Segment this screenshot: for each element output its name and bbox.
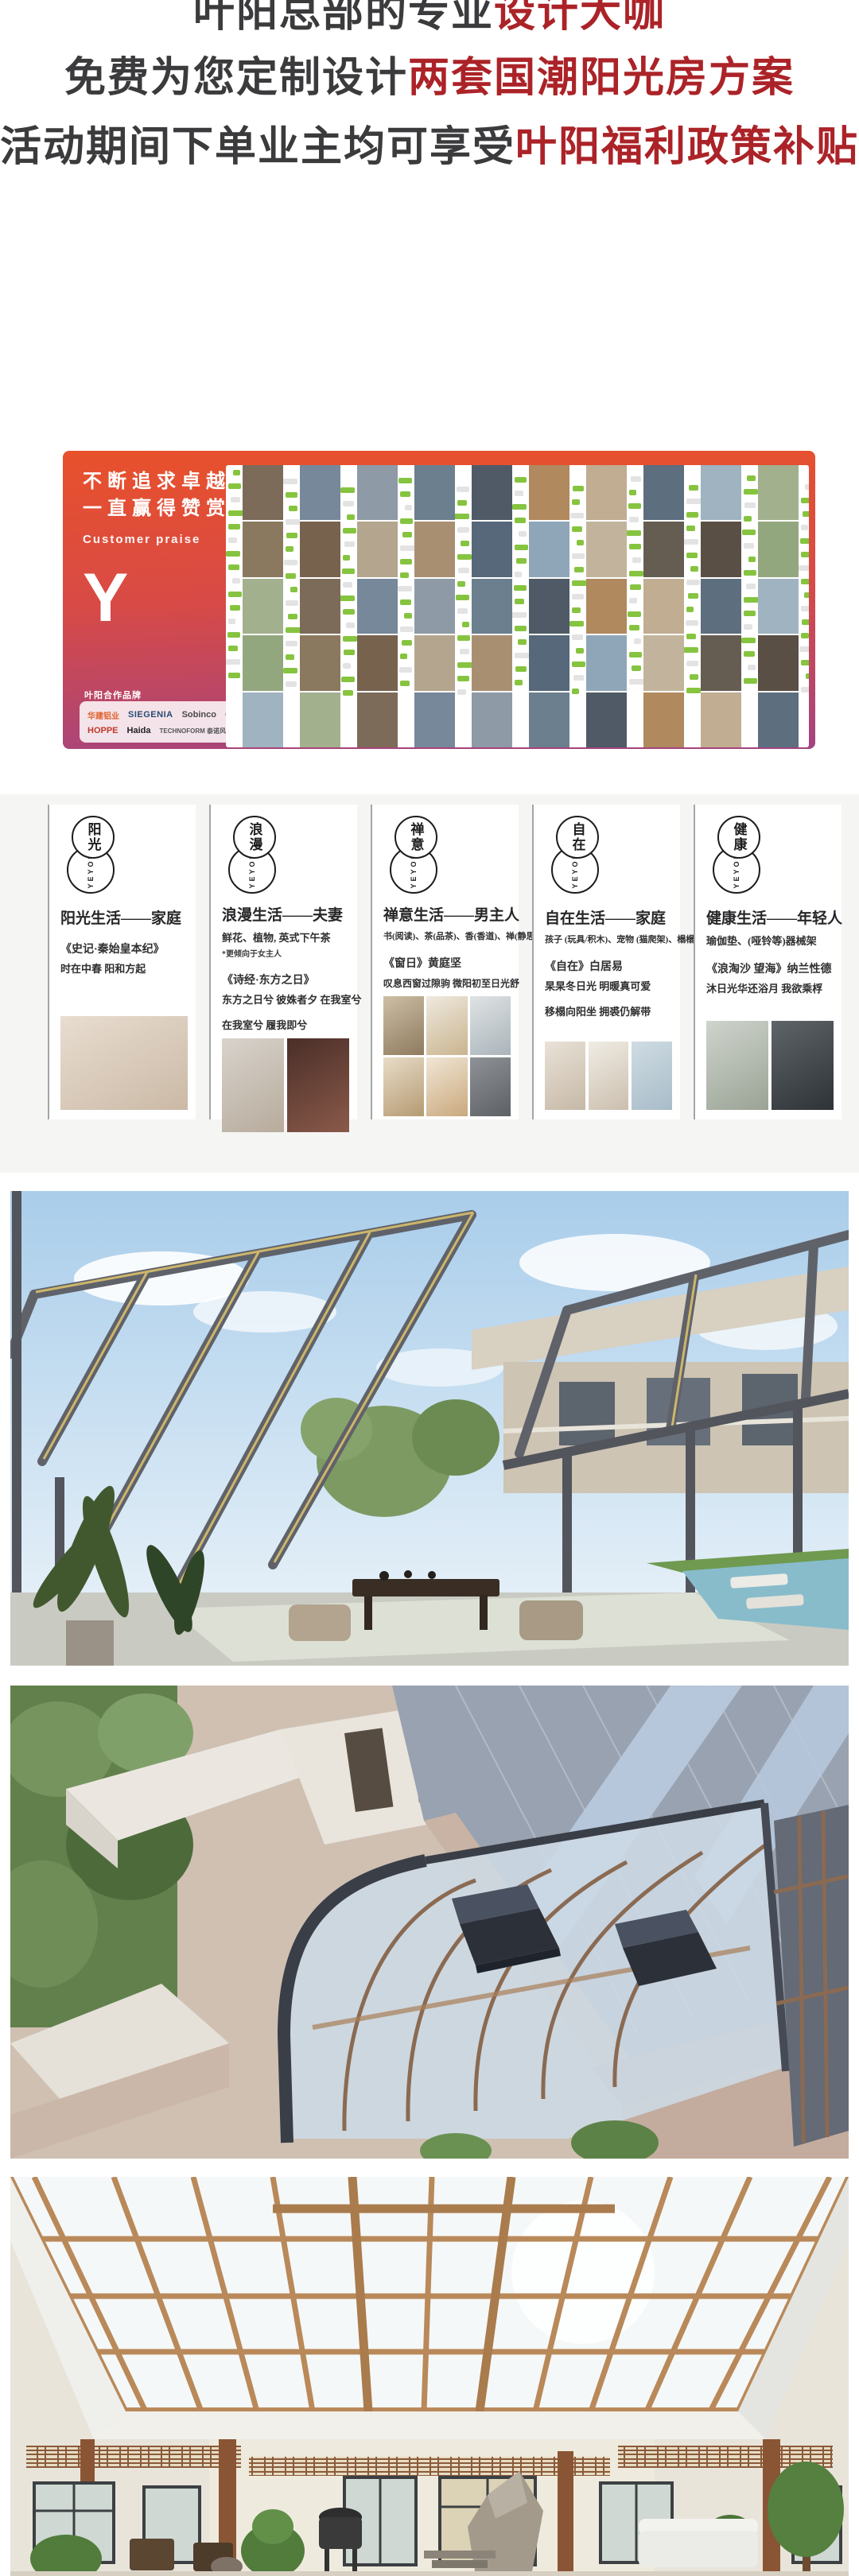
trees-left [10, 1686, 193, 2027]
card-photo-strip [60, 1016, 188, 1110]
poem-source: 《自在》白居易 [545, 958, 672, 974]
poem-source: 《浪淘沙 望海》纳兰性德 [706, 960, 834, 976]
lifestyle-card-carefree-family: 自在 YEYON 自在生活——家庭 孩子 (玩具/积木)、宠物 (猫爬架)、榻榻… [532, 805, 680, 1119]
lifestyle-card-healthy-youth: 健康 YEYON 健康生活——年轻人 瑜伽垫、(哑铃等)器械架 《浪淘沙 望海》… [694, 805, 842, 1119]
headline-line-3: 活动期间下单业主均可享受叶阳福利政策补贴 [0, 123, 859, 171]
brand-logo-technoform: TECHNOFORM 泰诺风 [159, 727, 226, 735]
headline-accent: 设计大咖 [494, 0, 666, 36]
poem-line: 在我室兮 履我即兮 [222, 1013, 349, 1038]
headline-line-1: 叶阳总部的专业设计大咖 [0, 0, 859, 37]
card-title: 健康生活——年轻人 [706, 906, 834, 928]
seal-circle-top: 自在 [556, 816, 599, 859]
lifestyle-card-zen-host: 禅意 YEYON 禅意生活——男主人 书(阅读)、茶(品茶)、香(香道)、禅(静… [371, 805, 519, 1119]
poem-line: 沐日光华还浴月 我欲乘桴 [706, 976, 834, 1002]
seal-circle-top: 浪漫 [233, 816, 276, 859]
seal-characters: 阳光 [87, 822, 100, 852]
card-photo [222, 1038, 284, 1132]
card-photo [383, 1057, 424, 1116]
ceiling-fascia [94, 2411, 766, 2439]
poem-line: 叹息西窗过隙驹 微阳初至日光舒 [383, 971, 511, 996]
card-subtitle: 书(阅读)、茶(品茶)、香(香道)、禅(静思) [383, 929, 511, 942]
headline-accent: 两套国潮阳光房方案 [408, 55, 795, 101]
card-photo-strip [222, 1038, 349, 1132]
headline-line-2: 免费为您定制设计两套国潮阳光房方案 [0, 54, 859, 102]
card-subtitle: 孩子 (玩具/积木)、宠物 (猫爬架)、榻榻米 [545, 933, 672, 945]
poem-line: 时在中春 阳和方起 [60, 956, 188, 982]
card-photo [60, 1016, 188, 1110]
card-title: 浪漫生活——夫妻 [222, 903, 349, 925]
lifestyle-card-sunshine-family: 阳光 YEYON 阳光生活——家庭 《史记·秦始皇本纪》 时在中春 阳和方起 [48, 805, 196, 1119]
card-photo-strip [545, 1042, 672, 1110]
card-photo [426, 1057, 467, 1116]
card-photo [287, 1038, 349, 1132]
banner-slogan: 不断追求卓越 一直赢得赞赏 Customer praise [83, 468, 231, 553]
card-photo [632, 1042, 672, 1110]
headline-accent: 叶阳福利政策补贴 [515, 124, 859, 170]
customer-collage [226, 465, 809, 747]
card-photo [706, 1021, 768, 1110]
card-photo [426, 996, 467, 1055]
card-photo [772, 1021, 834, 1110]
seal-circle-top: 禅意 [395, 816, 437, 859]
poem-source: 《诗经·东方之日》 [222, 972, 349, 987]
poem-line: 移榻向阳坐 拥裘仍解带 [545, 999, 672, 1025]
headline-text: 叶阳总部的专业 [193, 0, 494, 36]
customer-praise-banner: 不断追求卓越 一直赢得赞赏 Customer praise Y 叶阳合作品牌 华… [63, 451, 815, 749]
yeyang-seal-logo: 阳光 YEYON [60, 816, 188, 897]
card-title: 禅意生活——男主人 [383, 903, 511, 925]
headline-text: 活动期间下单业主均可享受 [0, 124, 515, 170]
seal-characters: 自在 [571, 822, 585, 852]
yeyang-y-logo: Y [83, 564, 128, 632]
card-photo [383, 996, 424, 1055]
brand-logo-siegenia: SIEGENIA [128, 710, 173, 720]
poem-source: 《史记·秦始皇本纪》 [60, 941, 188, 956]
seal-circle-top: 健康 [717, 816, 760, 859]
card-photo [545, 1042, 585, 1110]
headline-block: 叶阳总部的专业设计大咖 免费为您定制设计两套国潮阳光房方案 活动期间下单业主均可… [0, 0, 859, 171]
poem-source: 《窗日》黄庭坚 [383, 955, 511, 971]
seal-characters: 禅意 [410, 822, 423, 852]
card-photo [470, 996, 511, 1055]
brand-logo-sobinco: Sobinco [182, 710, 216, 720]
lifestyle-cards-section: 阳光 YEYON 阳光生活——家庭 《史记·秦始皇本纪》 时在中春 阳和方起 浪… [0, 794, 859, 1173]
photo-sunroom-interior [10, 1191, 849, 1666]
card-note: *更倾向于女主人 [222, 947, 349, 959]
poem-line: 东方之日兮 彼姝者夕 在我室兮 [222, 987, 349, 1013]
brand-logo-hoppe: HOPPE [87, 726, 119, 735]
headline-text: 免费为您定制设计 [64, 55, 408, 101]
banner-slogan-line1: 不断追求卓越 [83, 468, 231, 495]
photo-wooden-skylight-courtyard [10, 2177, 849, 2576]
card-title: 阳光生活——家庭 [60, 906, 188, 928]
card-title: 自在生活——家庭 [545, 906, 672, 928]
seal-circle-top: 阳光 [72, 816, 115, 859]
partner-brands-label: 叶阳合作品牌 [84, 689, 142, 701]
seal-characters: 健康 [733, 822, 746, 852]
lifestyle-card-romantic-couple: 浪漫 YEYON 浪漫生活——夫妻 鲜花、植物, 英式下午茶 *更倾向于女主人 … [209, 805, 357, 1119]
yeyang-seal-logo: 浪漫 YEYON [222, 816, 349, 894]
card-photo-strip [706, 1021, 834, 1110]
card-subtitle: 鲜花、植物, 英式下午茶 [222, 929, 349, 945]
brand-logo-huajian: 华建铝业 [87, 709, 119, 721]
yeyang-seal-logo: 禅意 YEYON [383, 816, 511, 894]
poem-line: 杲杲冬日光 明暖真可爱 [545, 974, 672, 999]
photo-curved-sunroom-exterior [10, 1686, 849, 2159]
seal-characters: 浪漫 [248, 822, 262, 852]
banner-slogan-line2: 一直赢得赞赏 [83, 495, 231, 522]
card-photo [589, 1042, 629, 1110]
card-subtitle: 瑜伽垫、(哑铃等)器械架 [706, 933, 834, 948]
yeyang-seal-logo: 自在 YEYON [545, 816, 672, 897]
brand-logo-haida: Haida [127, 726, 151, 735]
card-photo-strip [383, 996, 511, 1116]
card-photo [470, 1057, 511, 1116]
yeyang-seal-logo: 健康 YEYON [706, 816, 834, 897]
banner-slogan-en: Customer praise [83, 526, 231, 553]
floor-shadow [10, 2571, 849, 2576]
